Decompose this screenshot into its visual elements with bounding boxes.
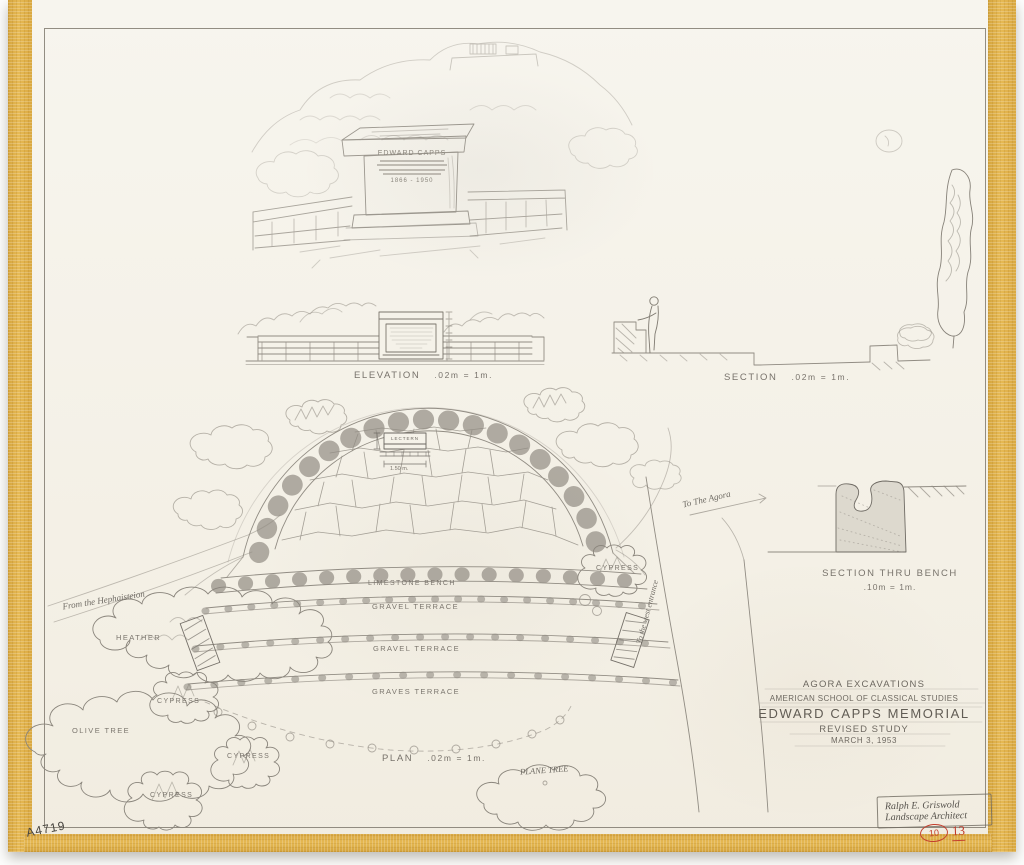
- red-circled-number-value: 10: [929, 828, 940, 839]
- section-scale: .02m = 1m.: [791, 372, 850, 382]
- plan-row-label-gravel-terrace-2: GRAVEL TERRACE: [373, 644, 460, 653]
- lectern-width-dimension: 1.50 m.: [390, 466, 408, 472]
- cypress-tree-sketch: [899, 169, 972, 348]
- olive-tree-label: OLIVE TREE: [72, 726, 130, 735]
- elevation-scale: .02m = 1m.: [434, 370, 493, 380]
- cypress-label-4: CYPRESS: [596, 565, 639, 572]
- title-block-date: MARCH 3, 1953: [738, 736, 990, 745]
- bench-section-title-block: SECTION THRU BENCH .10m = 1m.: [810, 568, 970, 592]
- section-title-row: SECTION.02m = 1m.: [724, 372, 850, 383]
- vegetation-sketch: [26, 388, 681, 831]
- hedge-line: [205, 702, 572, 754]
- inscription-text-line: [383, 173, 441, 175]
- inscription-text-line: [380, 160, 444, 162]
- scanned-drawing-page: { "document": { "catalog_number": "A4719…: [0, 0, 1024, 865]
- title-block-subtitle: REVISED STUDY: [738, 724, 990, 735]
- cypress-label-3: CYPRESS: [150, 792, 193, 799]
- section-title: SECTION: [724, 372, 777, 383]
- memorial-inscription: EDWARD CAPPS 1866 - 1950: [370, 150, 454, 184]
- elevation-drawing: [238, 303, 544, 365]
- heather-label: HEATHER: [116, 633, 161, 642]
- title-block-project: AGORA EXCAVATIONS: [738, 679, 990, 690]
- plan-row-label-limestone-bench: LIMESTONE BENCH: [368, 580, 456, 587]
- bench-section-title: SECTION THRU BENCH: [810, 568, 970, 579]
- plan-title-row: PLAN.02m = 1m.: [382, 753, 486, 764]
- bench-section-scale: .10m = 1m.: [810, 582, 970, 592]
- inscription-dates: 1866 - 1950: [370, 178, 454, 184]
- inscription-text-line: [377, 164, 447, 166]
- plan-row-label-graves-terrace: GRAVES TERRACE: [372, 687, 460, 696]
- human-figure-sketch: [638, 297, 658, 353]
- walkway-path: [646, 477, 768, 812]
- cypress-label-2: CYPRESS: [227, 753, 270, 760]
- bench-section-drawing: [768, 481, 966, 552]
- title-block-institution: AMERICAN SCHOOL OF CLASSICAL STUDIES: [738, 694, 990, 703]
- terrace-end-wall-left: [180, 615, 220, 670]
- lectern-label: LECTERN: [384, 436, 426, 441]
- plan-title: PLAN: [382, 753, 413, 764]
- plan-row-label-gravel-terrace-1: GRAVEL TERRACE: [372, 602, 459, 611]
- acropolis-sketch: [450, 44, 538, 70]
- pencil-circle-mark: [876, 130, 902, 152]
- section-drawing: [612, 297, 934, 370]
- elevation-title-row: ELEVATION.02m = 1m.: [354, 370, 493, 381]
- signature-role: Landscape Architect: [885, 810, 991, 824]
- red-page-number: 13: [952, 823, 966, 841]
- inscription-title: EDWARD CAPPS: [370, 150, 454, 157]
- plan-scale: .02m = 1m.: [427, 753, 486, 763]
- inscription-text-line: [379, 169, 445, 171]
- cypress-label-1: CYPRESS: [157, 698, 200, 705]
- elevation-title: ELEVATION: [354, 370, 420, 381]
- title-block-title: EDWARD CAPPS MEMORIAL: [738, 706, 990, 721]
